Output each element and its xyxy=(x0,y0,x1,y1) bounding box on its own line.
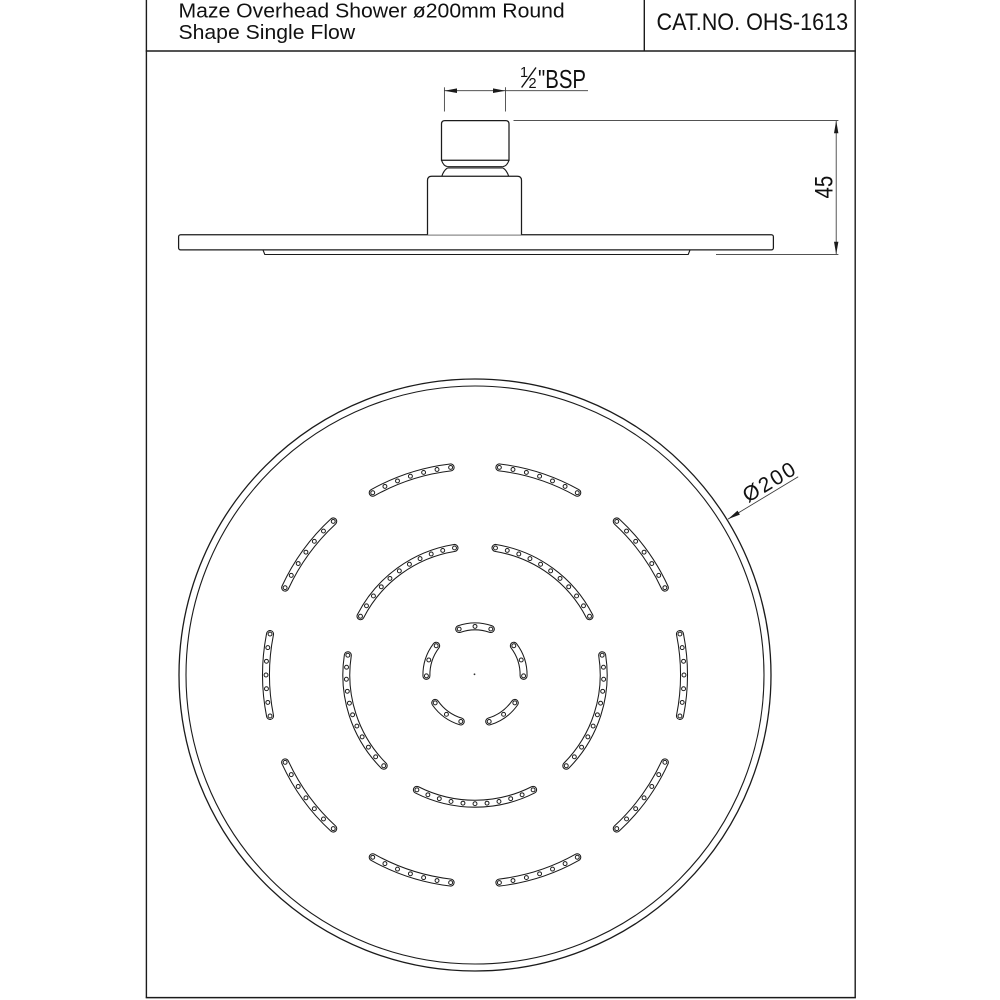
svg-text:2: 2 xyxy=(529,76,537,92)
svg-text:Maze Overhead Shower ø200mm Ro: Maze Overhead Shower ø200mm Round xyxy=(179,0,565,22)
svg-text:Ø200: Ø200 xyxy=(739,457,802,507)
svg-text:"BSP: "BSP xyxy=(538,65,586,94)
svg-text:45: 45 xyxy=(810,176,838,199)
svg-text:Shape Single Flow: Shape Single Flow xyxy=(179,21,356,43)
svg-text:CAT.NO. OHS-1613: CAT.NO. OHS-1613 xyxy=(657,8,849,35)
svg-text:1: 1 xyxy=(520,65,528,81)
